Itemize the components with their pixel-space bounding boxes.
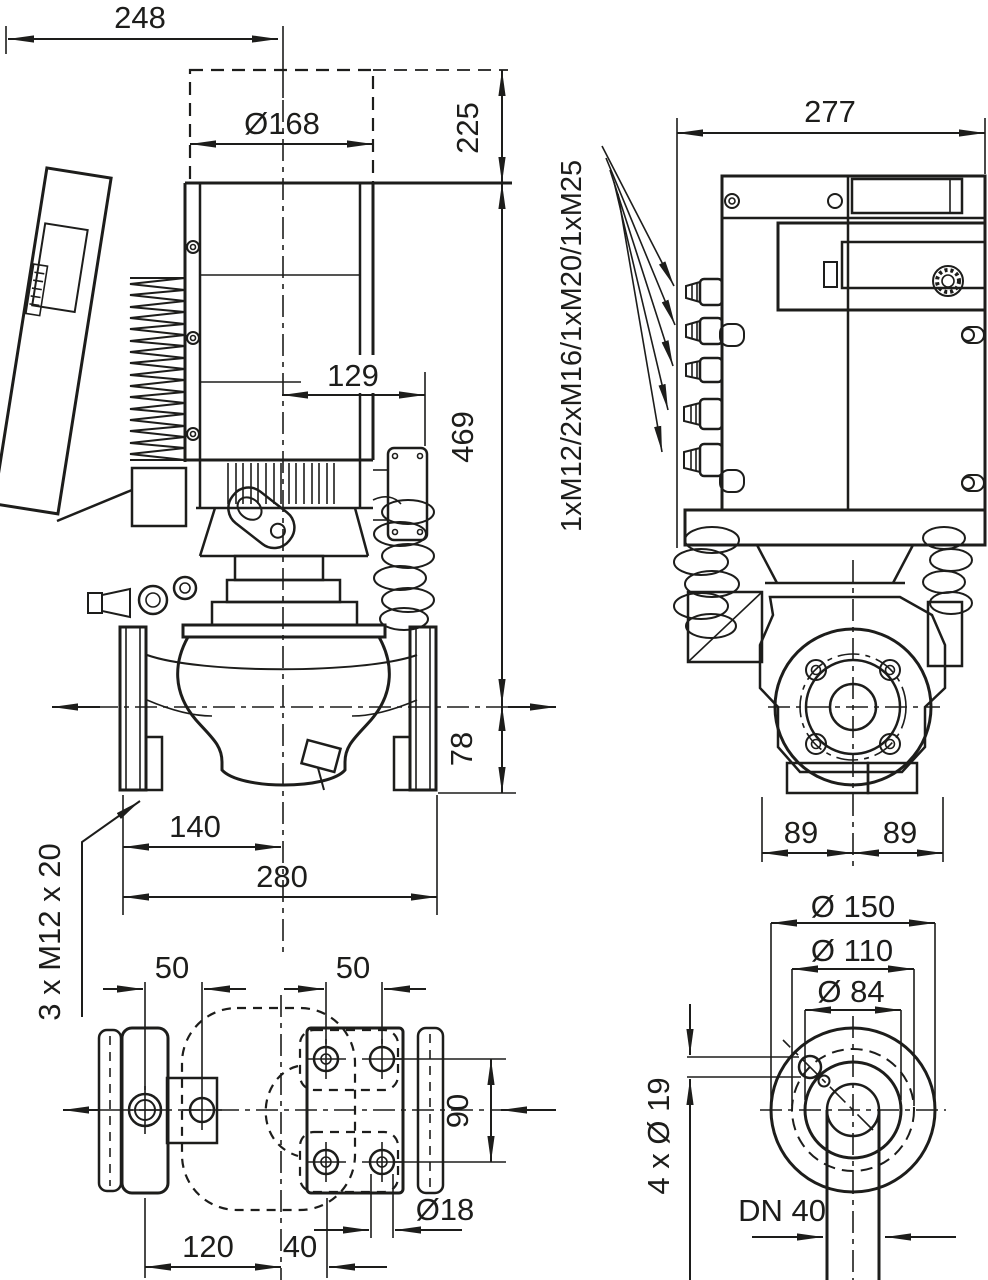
dim-label: 280	[256, 859, 308, 894]
dim-height-78: 78	[438, 705, 516, 793]
dim-width-248: 248	[6, 0, 283, 98]
side-view: 248 Ø168 225 469 78 129 140	[0, 0, 556, 1021]
callout-label: 1xM12/2xM16/1xM20/1xM25	[556, 160, 588, 532]
dim-height-469: 469	[445, 183, 502, 705]
dim-label: Ø18	[416, 1192, 475, 1227]
dim-label: 50	[336, 950, 370, 985]
control-module	[0, 168, 111, 514]
discharge-flange	[410, 627, 436, 790]
dim-motor-diameter: Ø168	[190, 106, 373, 144]
dim-label: 140	[169, 809, 221, 844]
gland-callout: 1xM12/2xM16/1xM20/1xM25	[556, 146, 675, 532]
dim-label: 225	[450, 102, 485, 154]
callout-label: 3 x M12 x 20	[32, 843, 67, 1020]
pump-housing-front	[688, 592, 962, 793]
dim-hole-dia-18: Ø18	[314, 1174, 474, 1238]
module-bracket	[132, 468, 186, 526]
flange-detail-view: Ø 150 Ø 110 Ø 84 4 x Ø 19 DN 40	[641, 889, 956, 1280]
dim-label: 50	[155, 950, 189, 985]
dim-height-225: 225	[450, 70, 502, 183]
drawing-canvas: 248 Ø168 225 469 78 129 140	[0, 0, 988, 1280]
dim-label: 89	[883, 815, 917, 850]
coiled-cable	[373, 497, 434, 630]
suction-flange	[120, 627, 146, 790]
pump-dimensional-drawing: 248 Ø168 225 469 78 129 140	[0, 0, 988, 1280]
cooling-fins	[130, 278, 185, 460]
flange-foot-right	[394, 737, 410, 790]
dim-label: 78	[444, 732, 479, 766]
dim-pitch-depth-90: 90	[395, 1059, 506, 1162]
dim-module-depth-129: 129	[282, 355, 425, 446]
cable-glands	[684, 279, 722, 476]
dim-label: Ø168	[244, 106, 320, 141]
dim-nominal-dn40: DN 40	[738, 1193, 956, 1237]
dim-label: Ø 84	[817, 974, 884, 1009]
dim-base-120-40: 120 40	[145, 1198, 387, 1278]
dim-label: 248	[114, 0, 166, 35]
sensor-connectors	[88, 577, 196, 617]
dim-label: Ø 110	[811, 933, 893, 968]
dim-label: 277	[804, 94, 856, 129]
display-module	[778, 223, 985, 310]
dim-label: 469	[445, 411, 480, 463]
dim-label: 89	[784, 815, 818, 850]
dim-label: 120	[182, 1229, 234, 1264]
lifting-eyelet	[221, 480, 302, 556]
flange-foot-left	[146, 737, 162, 790]
base-plan-view: 50 50 90 Ø18 120 40	[63, 950, 556, 1280]
display-window	[32, 223, 87, 312]
dim-label: Ø 150	[811, 889, 895, 924]
dim-label: DN 40	[738, 1193, 826, 1228]
dim-label: 40	[283, 1229, 317, 1264]
dim-label: 129	[327, 358, 379, 393]
dim-label: 4 x Ø 19	[641, 1077, 676, 1194]
flange-circles	[760, 1016, 946, 1280]
front-view: 1xM12/2xM16/1xM20/1xM25	[556, 94, 985, 872]
dim-pitch-left-50: 50	[103, 950, 246, 1090]
terminal-box	[720, 176, 985, 510]
dim-label: 90	[440, 1094, 475, 1128]
callout-foot-thread: 3 x M12 x 20	[32, 801, 140, 1021]
